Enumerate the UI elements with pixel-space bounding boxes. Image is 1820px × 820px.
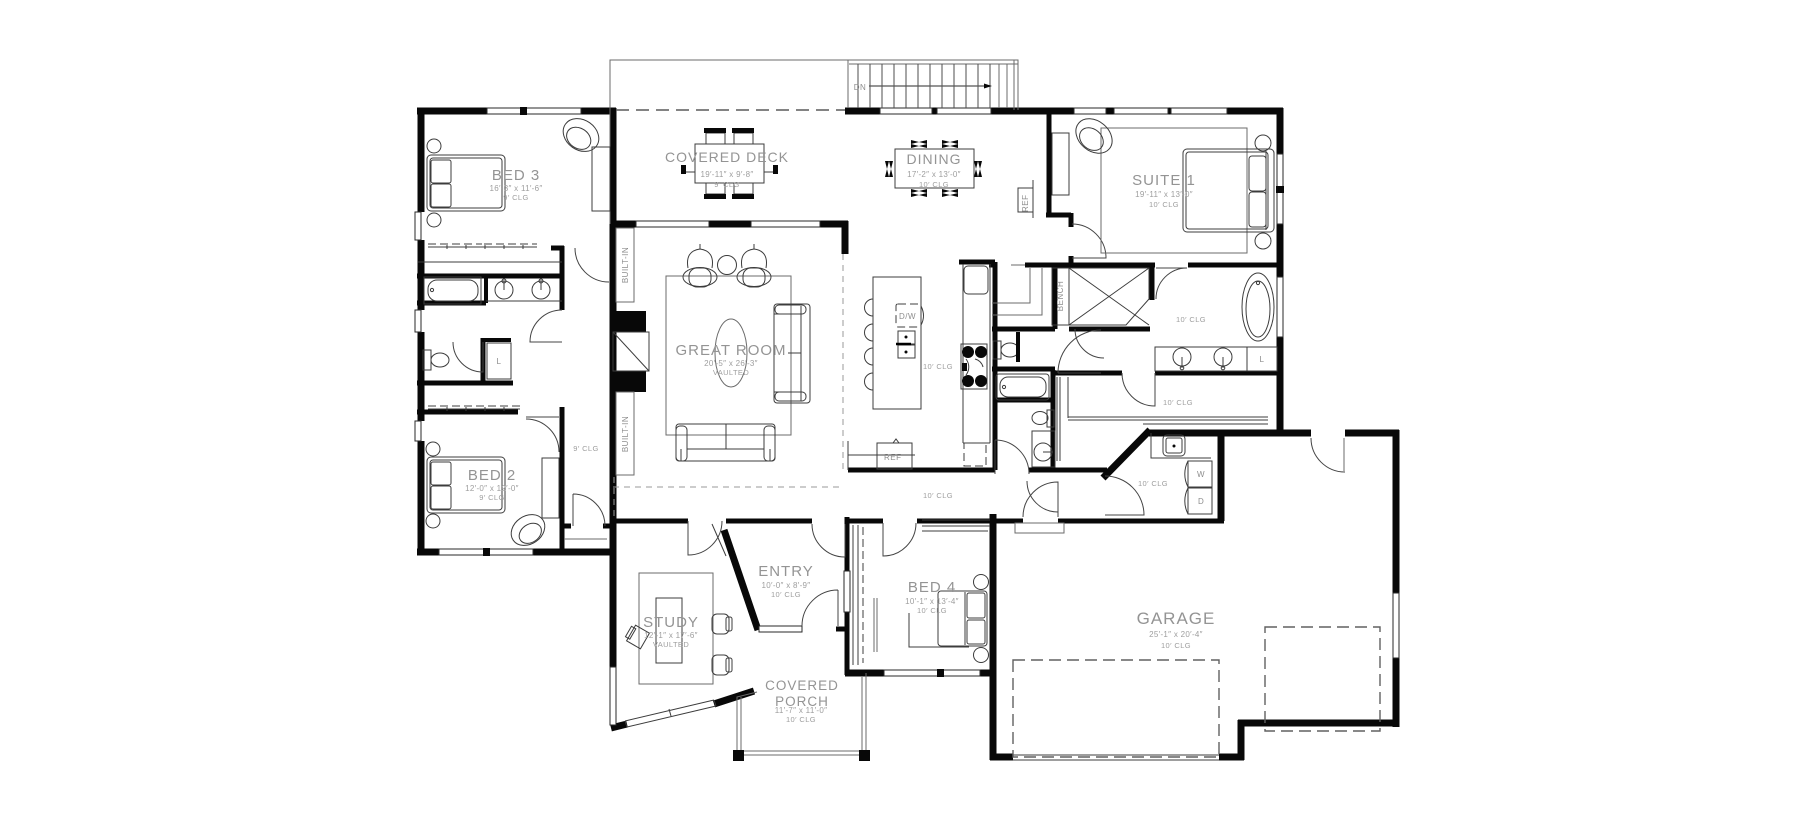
- svg-text:REF: REF: [884, 453, 902, 462]
- svg-text:10′-1″ x 13′-4″: 10′-1″ x 13′-4″: [905, 597, 959, 606]
- svg-text:BED 2: BED 2: [468, 467, 516, 484]
- svg-text:SUITE 1: SUITE 1: [1132, 172, 1196, 189]
- svg-text:19′-11″ x 9′-8″: 19′-11″ x 9′-8″: [700, 170, 753, 179]
- svg-text:VAULTED: VAULTED: [653, 640, 689, 649]
- svg-text:COVERED DECK: COVERED DECK: [665, 149, 789, 165]
- svg-text:GREAT ROOM: GREAT ROOM: [675, 342, 786, 359]
- svg-text:10′ CLG: 10′ CLG: [919, 180, 949, 189]
- svg-text:10′ CLG: 10′ CLG: [917, 606, 947, 615]
- svg-text:17′-2″ x 13′-0″: 17′-2″ x 13′-0″: [907, 170, 961, 179]
- svg-text:DINING: DINING: [907, 151, 962, 167]
- svg-text:D: D: [1198, 497, 1204, 506]
- svg-text:10′ CLG: 10′ CLG: [1176, 315, 1206, 324]
- svg-text:11′-7″ x 11′-0″: 11′-7″ x 11′-0″: [775, 706, 827, 715]
- svg-text:9′ CLG: 9′ CLG: [503, 193, 528, 202]
- svg-text:25′-1″ x 20′-4″: 25′-1″ x 20′-4″: [1149, 630, 1203, 639]
- svg-text:COVERED: COVERED: [765, 678, 839, 693]
- svg-text:ENTRY: ENTRY: [758, 563, 814, 580]
- svg-text:GARAGE: GARAGE: [1137, 609, 1216, 628]
- svg-text:10′ CLG: 10′ CLG: [1163, 398, 1193, 407]
- svg-text:D/W: D/W: [899, 312, 916, 321]
- svg-text:DN: DN: [854, 83, 867, 92]
- svg-text:9′ CLG: 9′ CLG: [479, 493, 504, 502]
- svg-text:16′-3″ x 11′-6″: 16′-3″ x 11′-6″: [489, 184, 542, 193]
- svg-text:10′ CLG: 10′ CLG: [771, 590, 801, 599]
- svg-text:9′ CLG: 9′ CLG: [714, 180, 739, 189]
- svg-text:L: L: [497, 357, 502, 366]
- svg-text:BENCH: BENCH: [1056, 281, 1065, 312]
- svg-text:BED 4: BED 4: [908, 579, 956, 596]
- svg-text:W: W: [1197, 470, 1205, 479]
- svg-text:9′ CLG: 9′ CLG: [573, 444, 598, 453]
- svg-text:12′-0″ x 12′-0″: 12′-0″ x 12′-0″: [465, 484, 519, 493]
- svg-text:12′-1″ x 17′-6″: 12′-1″ x 17′-6″: [644, 631, 698, 640]
- svg-text:20′-5″ x 26′-3″: 20′-5″ x 26′-3″: [704, 359, 758, 368]
- svg-text:STUDY: STUDY: [643, 614, 699, 631]
- svg-text:VAULTED: VAULTED: [713, 368, 749, 377]
- svg-text:10′ CLG: 10′ CLG: [1138, 479, 1168, 488]
- svg-text:L: L: [1260, 355, 1265, 364]
- svg-text:BED 3: BED 3: [492, 167, 540, 184]
- svg-text:10′ CLG: 10′ CLG: [1161, 641, 1191, 650]
- svg-text:BUILT-IN: BUILT-IN: [621, 416, 630, 452]
- svg-text:BUILT-IN: BUILT-IN: [621, 247, 630, 283]
- svg-text:10′ CLG: 10′ CLG: [923, 362, 953, 371]
- svg-text:19′-11″ x 13′-0″: 19′-11″ x 13′-0″: [1135, 190, 1193, 199]
- svg-text:REF: REF: [1021, 195, 1030, 213]
- svg-text:10′ CLG: 10′ CLG: [786, 715, 816, 724]
- svg-text:10′-0″ x 8′-9″: 10′-0″ x 8′-9″: [762, 581, 811, 590]
- svg-text:10′ CLG: 10′ CLG: [923, 491, 953, 500]
- svg-text:10′ CLG: 10′ CLG: [1149, 200, 1179, 209]
